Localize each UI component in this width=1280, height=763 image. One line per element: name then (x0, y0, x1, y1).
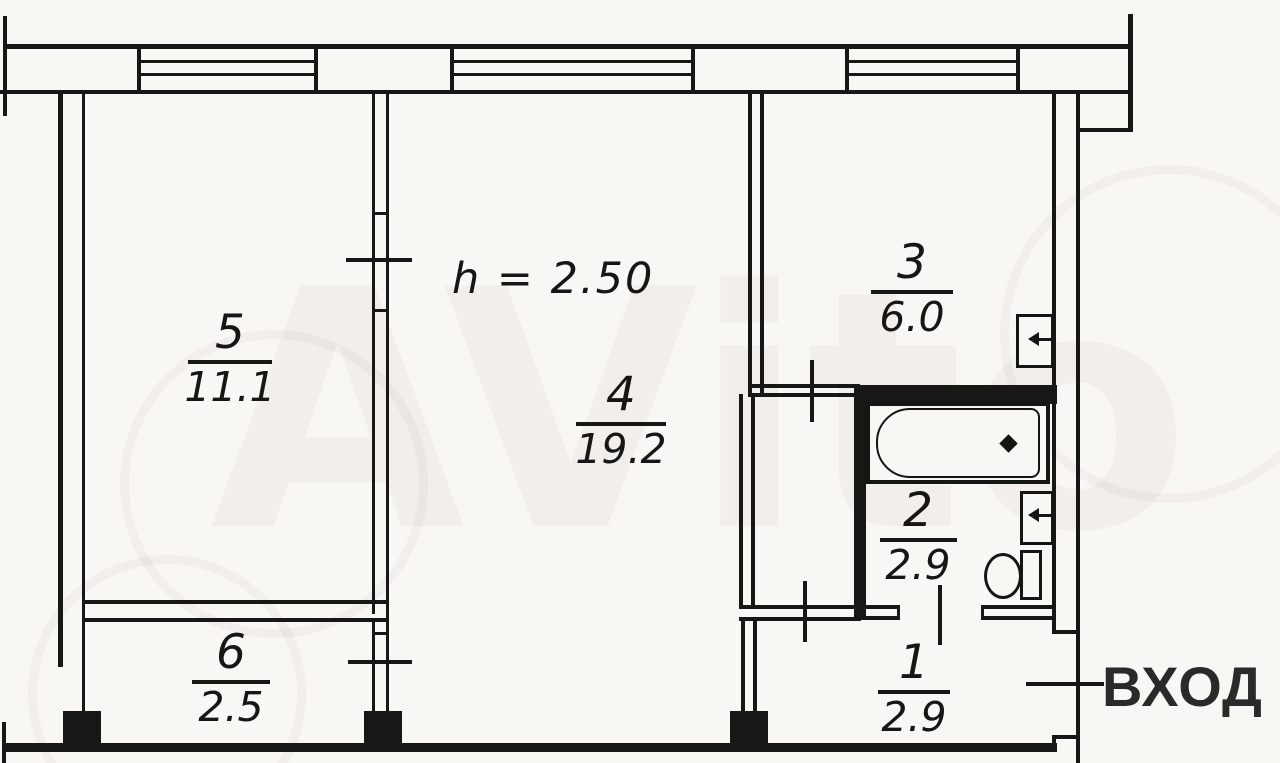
window-room3-glass (845, 60, 1020, 63)
room-number: 1 (854, 639, 974, 686)
wall-room6-right (372, 622, 375, 714)
door-mark-kitchen (810, 360, 814, 422)
wall-room6-right (386, 622, 389, 714)
door-mark-bathroom (938, 585, 942, 645)
wall-hall-top (739, 605, 861, 609)
room-5-label: 5 11.1 (170, 309, 290, 408)
room-area: 11.1 (170, 367, 290, 408)
room-4-label: 4 19.2 (561, 371, 681, 470)
pillar (730, 711, 768, 746)
wall-room5-room6 (84, 600, 389, 604)
room-1-label: 1 2.9 (854, 639, 974, 738)
wall-room5-room4 (372, 92, 375, 614)
wall-kitchen-left (760, 92, 764, 394)
entrance-door-jamb-bottom (1052, 735, 1080, 739)
left-wall-outer (58, 93, 63, 667)
wall-kitchen-bottom (748, 393, 860, 397)
room-area: 2.9 (854, 697, 974, 738)
window-room4-cap (450, 44, 454, 94)
room-number: 5 (170, 309, 290, 356)
door-jamb (897, 605, 900, 620)
room-2-label: 2 2.9 (858, 487, 978, 586)
window-room4-glass (450, 73, 695, 76)
wall-kitchen-left (748, 92, 752, 394)
window-room4-glass (450, 60, 695, 63)
window-room5-glass (137, 60, 318, 63)
window-room5-cap (137, 44, 141, 94)
bottom-left-tick (2, 722, 6, 763)
room-number: 2 (858, 487, 978, 534)
room-area: 2.5 (171, 687, 291, 728)
bottom-wall (4, 743, 1057, 752)
kitchen-sink-tap (1038, 338, 1054, 341)
wall-hall-left (741, 621, 745, 713)
top-left-stub (0, 90, 60, 94)
sink-tap-arrow-icon (1028, 508, 1039, 522)
wall-corridor-left (751, 394, 755, 609)
pillar (364, 711, 402, 746)
room-6-label: 6 2.5 (171, 629, 291, 728)
room-3-label: 3 6.0 (852, 239, 972, 338)
wall-room5-room4 (386, 92, 389, 622)
entrance-door-jamb-top (1052, 630, 1080, 634)
top-right-jog (1076, 128, 1133, 132)
top-wall-inner (60, 90, 1133, 94)
room-area: 6.0 (852, 297, 972, 338)
door-jamb (372, 632, 389, 635)
entrance-leader-line (1026, 682, 1104, 686)
room-area: 2.9 (858, 545, 978, 586)
room-number: 6 (171, 629, 291, 676)
door-jamb (372, 212, 389, 215)
right-wall-outer (1076, 92, 1080, 763)
floor-plan: AVito (0, 0, 1280, 763)
wall-hall-left (753, 621, 757, 713)
ceiling-height-label: h = 2.50 (452, 254, 654, 304)
top-right-wall (1128, 14, 1133, 132)
window-room3-cap (845, 44, 849, 94)
wall-bathroom-bottom (981, 616, 1055, 620)
wall-hall-top (739, 617, 861, 621)
kitchen-sink-tap-arrow-icon (1028, 332, 1039, 346)
room-number: 4 (561, 371, 681, 418)
room-number: 3 (852, 239, 972, 286)
door-jamb (981, 605, 984, 620)
door-jamb (372, 309, 389, 312)
window-room4-cap (691, 44, 695, 94)
toilet-icon (984, 553, 1022, 599)
window-room5-glass (137, 73, 318, 76)
pillar (63, 711, 101, 746)
door-mark-hall (803, 581, 807, 642)
wall-bathroom-bottom (981, 605, 1055, 609)
wall-bathroom-bottom (854, 605, 900, 609)
door-mark-room5 (346, 258, 412, 262)
window-room5-cap (314, 44, 318, 94)
toilet-tank (1020, 550, 1042, 600)
window-room3-glass (845, 73, 1020, 76)
top-wall-outer (6, 44, 1133, 49)
top-left-tick (3, 16, 7, 116)
wall-kitchen-bottom (748, 384, 860, 388)
entrance-label: ВХОД (1102, 654, 1263, 719)
door-mark-room6 (348, 660, 412, 664)
wall-corridor-left (739, 394, 743, 609)
sink-tap (1038, 514, 1054, 517)
wall-bathroom-bottom (854, 616, 900, 620)
window-room3-cap (1016, 44, 1020, 94)
room-area: 19.2 (561, 429, 681, 470)
wall-room5-room6 (84, 618, 389, 622)
